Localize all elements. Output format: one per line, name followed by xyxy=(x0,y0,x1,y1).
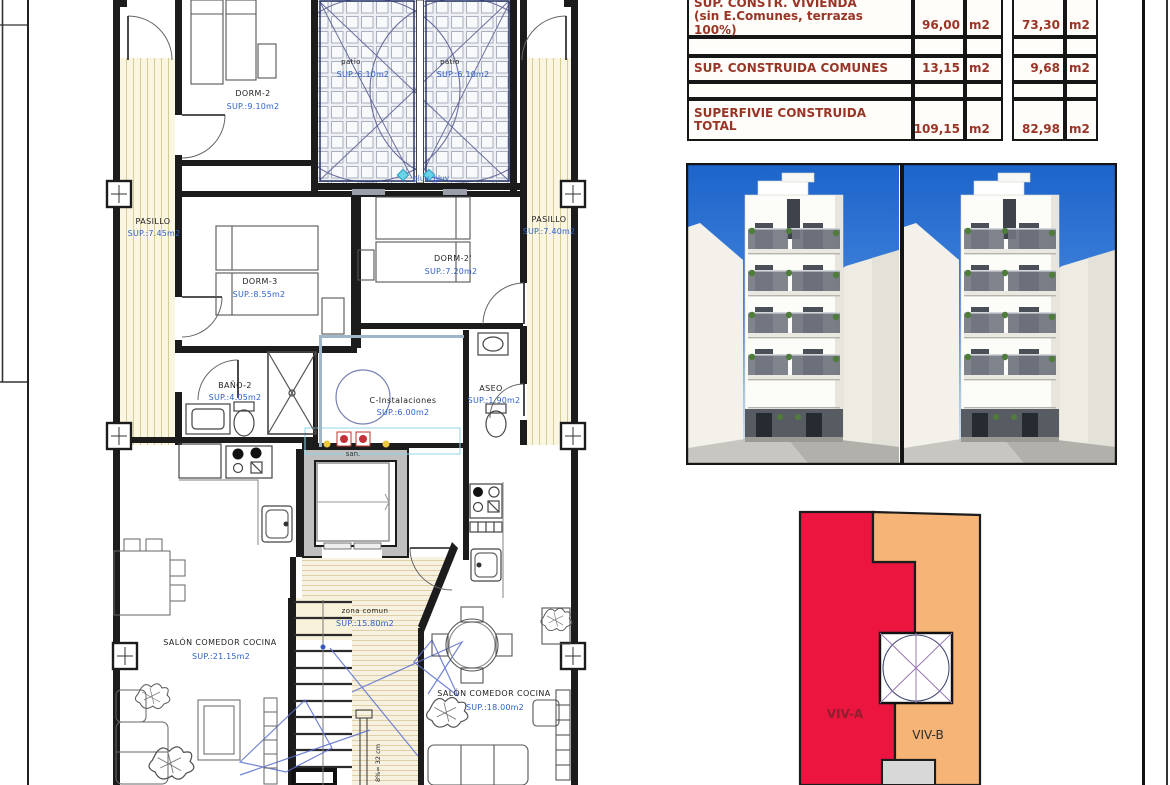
kitchen-b xyxy=(470,482,503,598)
room-label-bano2: BAÑO-2 SUP.:4.05m2 xyxy=(209,380,262,402)
table-row3-value-a: 109,15 xyxy=(913,99,965,141)
render-divider xyxy=(900,165,904,463)
diagram-gray-block xyxy=(882,760,935,785)
table-row2-unit-a: m2 xyxy=(965,56,1003,82)
svg-text:SALÓN COMEDOR COCINA: SALÓN COMEDOR COCINA xyxy=(163,636,277,647)
table-row3-value-b: 82,98 xyxy=(1012,99,1065,141)
svg-text:SUP.:7.45m2: SUP.:7.45m2 xyxy=(128,229,181,238)
svg-text:SUP.:8.55m2: SUP.:8.55m2 xyxy=(233,290,286,299)
table-row1-unit-b: m2 xyxy=(1065,0,1098,37)
svg-text:SUP.:9.10m2: SUP.:9.10m2 xyxy=(227,102,280,111)
sketch-lines xyxy=(240,640,462,775)
table-row1-value-a: 96,00 xyxy=(913,0,965,37)
room-label-salon-a: SALÓN COMEDOR COCINA SUP.:21.15m2 xyxy=(163,636,277,661)
sheet-edge-line xyxy=(1166,0,1168,785)
svg-text:SUP.:1.90m2: SUP.:1.90m2 xyxy=(468,396,521,405)
room-label-cinst: C-Instalaciones SUP.:6.00m2 xyxy=(370,396,437,417)
room-label-dorm3: DORM-3 SUP.:8.55m2 xyxy=(233,277,286,299)
table-row2-unit-b: m2 xyxy=(1065,56,1098,82)
svg-text:DORM-2: DORM-2 xyxy=(235,89,270,98)
svg-text:patio: patio xyxy=(440,58,460,66)
table-row3-unit-a: m2 xyxy=(965,99,1003,141)
svg-text:patio: patio xyxy=(341,58,361,66)
san-label: san. xyxy=(346,450,361,458)
svg-text:ASEO: ASEO xyxy=(479,384,503,393)
room-label-aseo: ASEO SUP.:1.90m2 xyxy=(468,384,521,405)
table-row2-value-a: 13,15 xyxy=(913,56,965,82)
svg-text:SUP.:6.00m2: SUP.:6.00m2 xyxy=(377,408,430,417)
building-renders xyxy=(686,163,1117,465)
room-label-dorm2: DORM-2 SUP.:9.10m2 xyxy=(227,89,280,111)
pasillo-right-floor xyxy=(527,58,571,445)
diagram-patio-square xyxy=(880,633,952,703)
svg-text:zona comun: zona comun xyxy=(342,607,389,615)
salon-a-furniture xyxy=(114,539,277,784)
table-row1-unit-a: m2 xyxy=(965,0,1003,37)
unit-diagram: VIV-A VIV-B xyxy=(795,500,987,785)
svg-text:C-Instalaciones: C-Instalaciones xyxy=(370,396,437,405)
svg-text:BAÑO-2: BAÑO-2 xyxy=(218,380,252,390)
svg-text:SUP.:18.00m2: SUP.:18.00m2 xyxy=(466,703,524,712)
svg-text:PASILLO: PASILLO xyxy=(136,217,171,226)
svg-text:PASILLO: PASILLO xyxy=(532,215,567,224)
svg-text:SUP.:15.80m2: SUP.:15.80m2 xyxy=(336,619,394,628)
building-render-right xyxy=(904,165,1115,463)
kitchen-a xyxy=(179,444,292,545)
svg-text:SUP.:7.40m2: SUP.:7.40m2 xyxy=(523,227,576,236)
viv-b-label: VIV-B xyxy=(912,728,943,742)
area-table: SUP. CONSTR. VIVIENDA(sin E.Comunes, ter… xyxy=(687,0,1098,141)
table-row2-label: SUP. CONSTRUIDA COMUNES xyxy=(687,56,913,82)
stair-dimension-label: 8%= 32 cm xyxy=(374,744,382,782)
svg-text:DORM-3: DORM-3 xyxy=(242,277,277,286)
svg-text:SALÓN COMEDOR COCINA: SALÓN COMEDOR COCINA xyxy=(437,687,551,698)
room-label-dorm2b: DORM-2' SUP.:7.20m2 xyxy=(425,254,478,276)
pluv-label: pluv. pluv. xyxy=(413,174,451,183)
sheet-margin-lines xyxy=(0,0,28,785)
svg-text:SUP.:6.10m2: SUP.:6.10m2 xyxy=(337,70,390,79)
plan-sheet: DORM-2 SUP.:9.10m2 patio SUP.:6.10m2 pat… xyxy=(0,0,1170,785)
sheet-border-line xyxy=(1142,0,1145,785)
svg-text:SUP.:7.20m2: SUP.:7.20m2 xyxy=(425,267,478,276)
table-row2-value-b: 9,68 xyxy=(1012,56,1065,82)
elevator xyxy=(303,449,408,558)
table-row1-value-b: 73,30 xyxy=(1012,0,1065,37)
building-render-left xyxy=(688,165,899,463)
table-row1-label: SUP. CONSTR. VIVIENDA(sin E.Comunes, ter… xyxy=(687,0,913,37)
table-row3-label: SUPERFIVIE CONSTRUIDATOTAL xyxy=(687,99,913,141)
svg-text:SUP.:21.15m2: SUP.:21.15m2 xyxy=(192,652,250,661)
svg-text:SUP.:6.10m2: SUP.:6.10m2 xyxy=(437,70,490,79)
svg-text:SUP.:4.05m2: SUP.:4.05m2 xyxy=(209,393,262,402)
table-row3-unit-b: m2 xyxy=(1065,99,1098,141)
svg-text:DORM-2': DORM-2' xyxy=(434,254,472,263)
pasillo-left-floor xyxy=(120,58,175,445)
viv-a-label: VIV-A xyxy=(827,707,864,721)
floor-plan: DORM-2 SUP.:9.10m2 patio SUP.:6.10m2 pat… xyxy=(0,0,660,785)
